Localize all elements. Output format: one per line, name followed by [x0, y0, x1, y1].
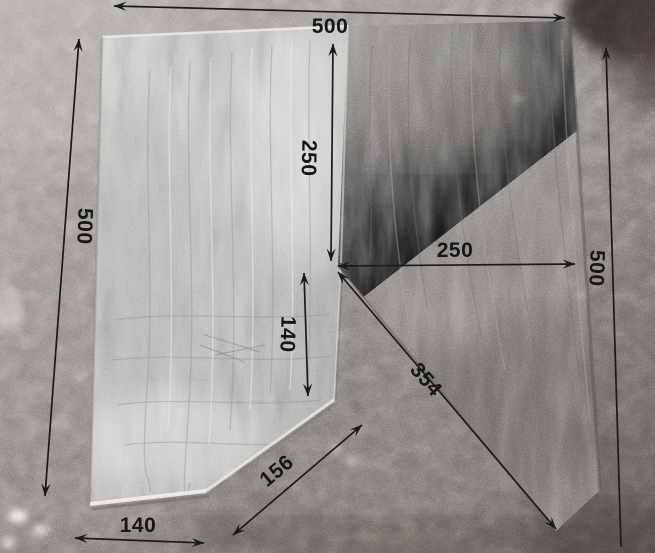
photo-canvas: 500 500 500 250 250 140 354 156	[0, 0, 655, 553]
dimension-label-top-width: 500	[312, 15, 349, 38]
dimension-label-bottom-tab: 140	[120, 514, 157, 537]
dimension-label-notch-depth: 140	[275, 316, 299, 353]
dimension-label-left-height: 500	[72, 208, 96, 245]
photo-grain	[0, 0, 655, 553]
dimension-label-center-drop: 250	[297, 140, 321, 177]
dimension-label-right-offset: 250	[437, 239, 474, 262]
dimension-label-right-height: 500	[584, 250, 608, 287]
